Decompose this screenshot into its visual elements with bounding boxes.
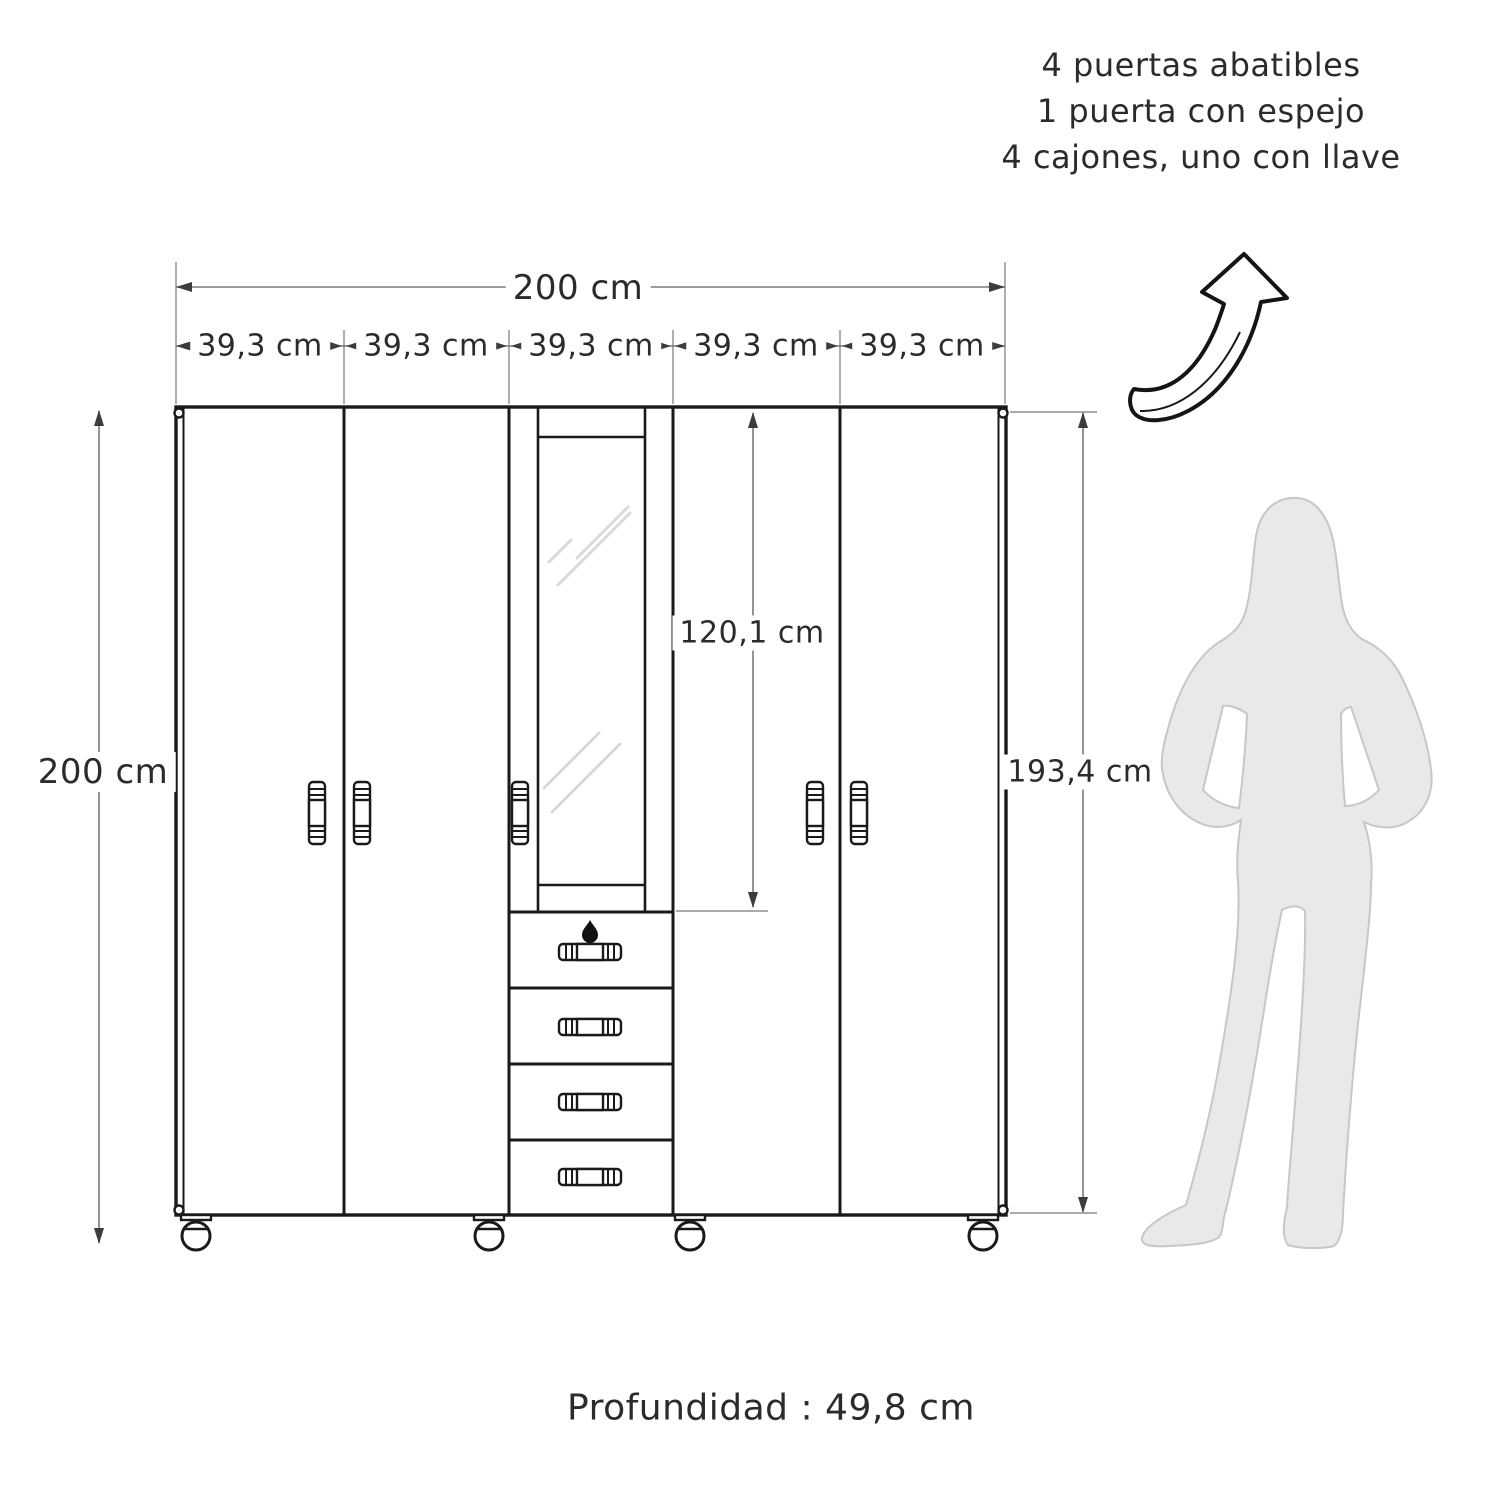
corner-pin bbox=[175, 1206, 184, 1215]
door-5-handle bbox=[851, 782, 867, 844]
dim-body-height: 193,4 cm bbox=[1000, 755, 1159, 790]
depth-note: Profundidad : 49,8 cm bbox=[567, 1388, 975, 1429]
diagram-linework bbox=[0, 0, 1500, 1500]
caster-wheel bbox=[474, 1215, 504, 1250]
mirror-door bbox=[509, 407, 673, 912]
curved-up-arrow-icon bbox=[1130, 254, 1287, 420]
dim-total-width: 200 cm bbox=[506, 268, 651, 308]
person-silhouette bbox=[1142, 498, 1432, 1248]
corner-pin bbox=[175, 409, 184, 418]
drawer-1-handle bbox=[559, 944, 621, 960]
feature-notes: 4 puertas abatibles 1 puerta con espejo … bbox=[966, 42, 1436, 180]
note-line-2: 1 puerta con espejo bbox=[966, 88, 1436, 134]
drawer-4-handle bbox=[559, 1169, 621, 1185]
caster-wheel bbox=[968, 1215, 998, 1250]
drawer-2-handle bbox=[559, 1019, 621, 1035]
door-4-handle bbox=[807, 782, 823, 844]
lock-keyhole-icon bbox=[582, 920, 598, 943]
wardrobe-technical-diagram: 4 puertas abatibles 1 puerta con espejo … bbox=[0, 0, 1500, 1500]
dim-section-4: 39,3 cm bbox=[686, 329, 826, 364]
caster-wheel bbox=[181, 1215, 211, 1250]
corner-pin bbox=[999, 409, 1008, 418]
dim-section-1: 39,3 cm bbox=[190, 329, 330, 364]
note-line-3: 4 cajones, uno con llave bbox=[966, 134, 1436, 180]
mirror-reflection-lines bbox=[544, 507, 630, 812]
door-1-handle bbox=[309, 782, 325, 844]
drawer-3-handle bbox=[559, 1094, 621, 1110]
dim-section-5: 39,3 cm bbox=[852, 329, 992, 364]
mirror-door-panel bbox=[509, 407, 673, 912]
door-2-handle bbox=[354, 782, 370, 844]
casters bbox=[181, 1215, 998, 1250]
door-handles bbox=[309, 782, 867, 1185]
dim-section-3: 39,3 cm bbox=[521, 329, 661, 364]
corner-pin bbox=[999, 1206, 1008, 1215]
caster-wheel bbox=[675, 1215, 705, 1250]
dim-total-height: 200 cm bbox=[31, 752, 176, 792]
note-line-1: 4 puertas abatibles bbox=[966, 42, 1436, 88]
mirror-door-handle bbox=[512, 782, 528, 844]
dim-mirror-height: 120,1 cm bbox=[672, 616, 831, 651]
dim-section-2: 39,3 cm bbox=[356, 329, 496, 364]
